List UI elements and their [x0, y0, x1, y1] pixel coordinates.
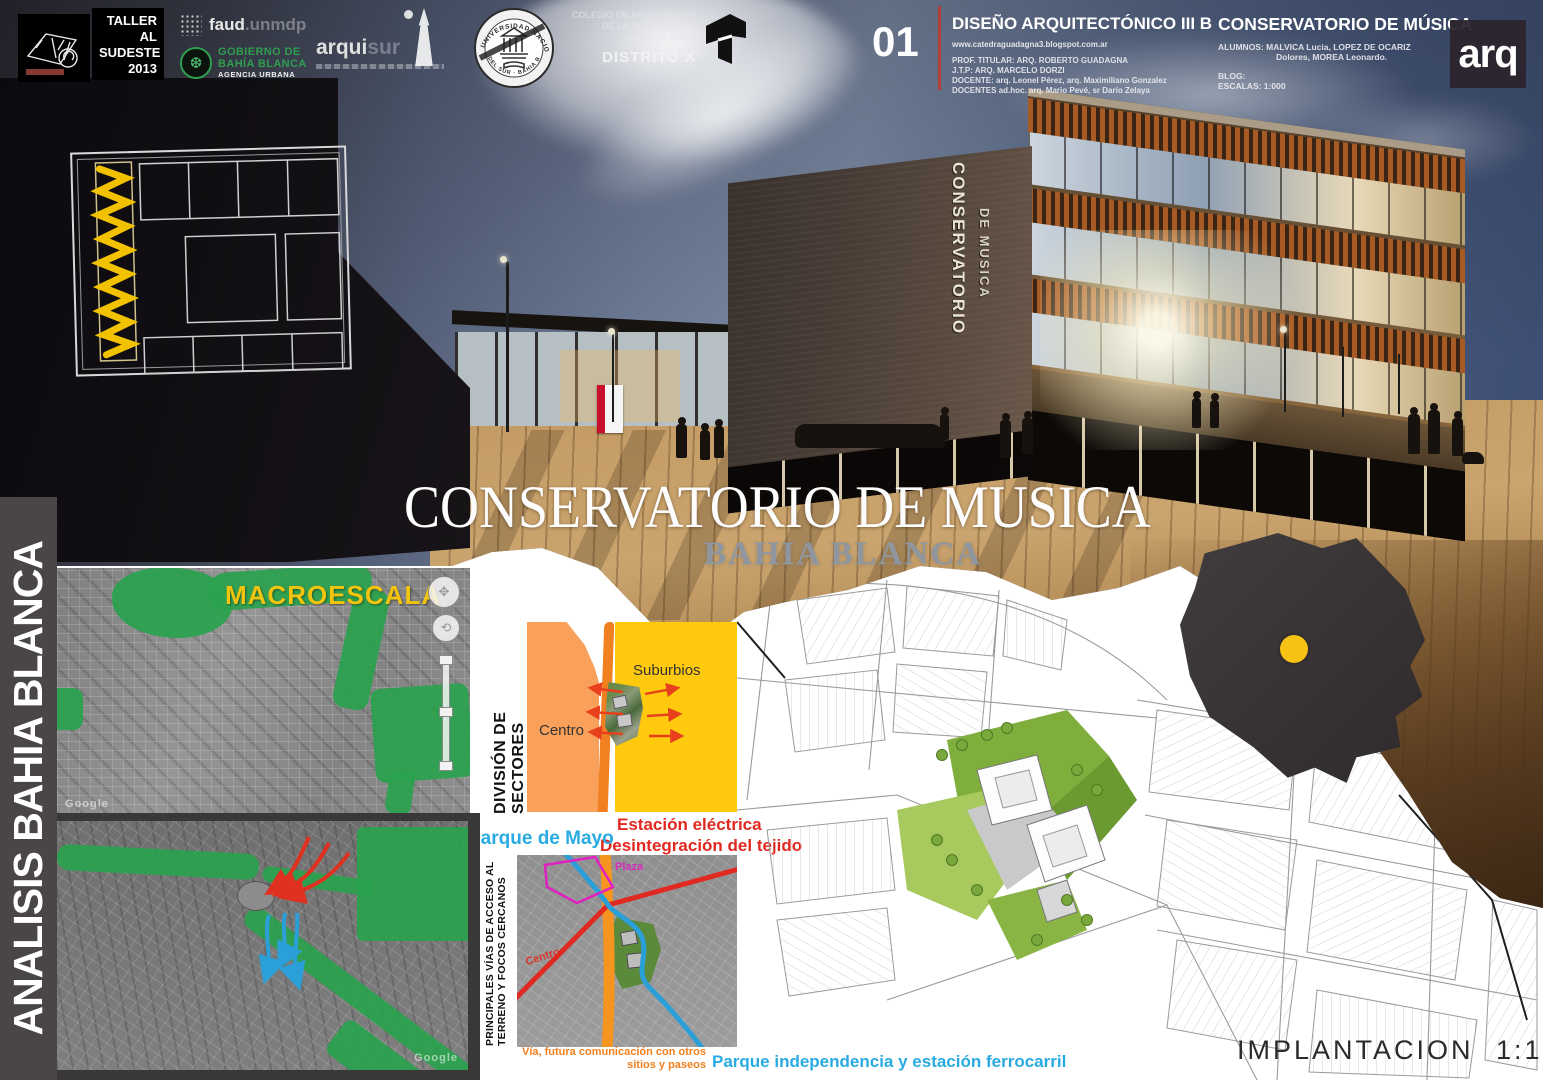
- map-watermark: Google: [65, 798, 109, 810]
- people-silhouette: [1210, 400, 1219, 428]
- hero-title-block: CONSERVATORIO DE MUSICA BAHIA BLANCA: [404, 472, 1151, 573]
- map-watermark: Google: [414, 1052, 458, 1064]
- colegio-block: COLEGIO DE ARQUITECTOS DE LA PROVINCIA D…: [560, 10, 696, 63]
- project-site: [897, 710, 1137, 960]
- sun-glyph: [404, 10, 413, 19]
- lamp-pole: [1284, 332, 1286, 412]
- gobierno-logo: ❆ GOBIERNO DE BAHÍA BLANCA AGENCIA URBAN…: [180, 46, 307, 79]
- green-area: [57, 688, 83, 730]
- people-silhouette: [700, 430, 710, 460]
- map-pan-control: ✥: [428, 576, 460, 608]
- plaza-label: Plaza: [615, 861, 643, 873]
- arq-logo-box: arq: [1450, 20, 1526, 88]
- lamp-head: [608, 328, 615, 335]
- sheet-number: 01: [872, 18, 919, 66]
- orange-caption: Vía, futura comunicación con otros sitio…: [480, 1046, 706, 1072]
- course-adhoc: DOCENTES ad.hoc. arq. Mario Pevé, sr Dar…: [952, 86, 1204, 96]
- project-alumnos1: ALUMNOS: MALVICA Lucia, LOPEZ DE OCARIZ: [1218, 42, 1450, 52]
- building-facade-left: [728, 146, 1032, 513]
- people-silhouette: [1000, 420, 1011, 458]
- course-url: www.catedraguadagna3.blogspot.com.ar: [952, 40, 1204, 50]
- green-area: [384, 768, 416, 814]
- lamp-head: [500, 256, 507, 263]
- colegio-line3: BUENOS AIRES: [560, 32, 696, 43]
- university-seal: UNIVERSIDAD NACIONAL DEL SUR · BAHIA BLA…: [472, 6, 556, 90]
- lamp-pole: [1398, 354, 1400, 414]
- people-silhouette: [1452, 418, 1463, 456]
- building-sign-line1: CONSERVATORIO: [948, 162, 968, 335]
- site-dot: [1280, 635, 1308, 663]
- sectors-diagram: Centro Suburbios: [527, 622, 737, 812]
- course-docente: DOCENTE: arq. Leonel Pérez, arq. Maximil…: [952, 76, 1204, 86]
- hero-title: CONSERVATORIO DE MUSICA: [404, 472, 1151, 541]
- sector-arrows: [527, 622, 737, 812]
- zoom-handle: [439, 707, 453, 717]
- faud-suffix: .unmdp: [245, 15, 306, 34]
- project-alumnos2: Dolores, MOREA Leonardo.: [1218, 52, 1450, 62]
- gobierno-line2: BAHÍA BLANCA: [218, 58, 307, 70]
- arq-logo-text: arq: [1458, 32, 1517, 77]
- flow-map: Google: [57, 821, 468, 1070]
- course-prof: PROF. TITULAR: ARQ. ROBERTO GUADAGNA: [952, 56, 1204, 66]
- signage-kiosk: [597, 385, 623, 433]
- faud-dots-icon: [180, 14, 202, 36]
- access-map: Plaza Centro: [517, 855, 737, 1047]
- taller-line: 2013: [99, 61, 157, 77]
- colegio-line2: DE LA PROVINCIA DE: [560, 21, 696, 32]
- zoom-handle: [439, 655, 453, 665]
- building-sign-line2: DE MUSICA: [977, 208, 992, 299]
- access-label-line1: PRINCIPALES VÍAS DE ACCESO AL: [484, 861, 496, 1046]
- presentation-board: IMPLANTACION 1:1000: [0, 0, 1543, 1080]
- arquisur-suffix: sur: [367, 36, 400, 59]
- map-zoom-slider: [442, 656, 450, 770]
- analysis-sidebar: ANALISIS BAHIA BLANCA: [0, 497, 57, 1080]
- course-jtp: J.T.P: ARQ. MARCELO DORZI: [952, 66, 1204, 76]
- hero-subtitle: BAHIA BLANCA: [404, 536, 982, 573]
- implantation-caption: IMPLANTACION 1:1000: [1237, 1035, 1543, 1066]
- seated-people-group: [795, 424, 945, 448]
- people-silhouette: [1408, 414, 1420, 454]
- dog-silhouette: [1462, 452, 1484, 464]
- macro-map: MACROESCALA ✥ ⟲ Google: [57, 568, 470, 814]
- access-label-line2: TERRENO Y FOCOS CERCANOS: [496, 877, 508, 1046]
- analysis-sidebar-label: ANALISIS BAHIA BLANCA: [5, 541, 52, 1036]
- monument-icon: [402, 8, 446, 66]
- flow-arrows: [57, 821, 468, 1070]
- lamp-pole: [1342, 347, 1344, 417]
- people-silhouette: [714, 426, 724, 458]
- project-block: CONSERVATORIO DE MÚSICA ALUMNOS: MALVICA…: [1218, 14, 1450, 91]
- access-label: PRINCIPALES VÍAS DE ACCESO AL TERRENO Y …: [484, 858, 508, 1046]
- header: TALLER AL SUDESTE 2013 faud.unmdp ❆ GOBI…: [0, 0, 1543, 100]
- gobierno-line3: AGENCIA URBANA: [218, 70, 307, 79]
- gobierno-line1: GOBIERNO DE: [218, 46, 307, 58]
- colegio-line1: COLEGIO DE ARQUITECTOS: [560, 10, 696, 21]
- project-title: CONSERVATORIO DE MÚSICA: [1218, 14, 1450, 35]
- faud-brand: faud: [209, 15, 245, 34]
- taller-logo-drawing: [18, 14, 90, 82]
- arquisur-brand: arqui: [316, 36, 367, 59]
- people-silhouette: [940, 414, 949, 440]
- sectors-label: DIVISIÓN DE SECTORES: [492, 622, 528, 814]
- taller-line: AL: [99, 29, 157, 45]
- parque-mayo-label: Parque de Mayo: [468, 828, 614, 850]
- distrito-label: DISTRITO X: [560, 52, 696, 63]
- zoom-handle: [439, 761, 453, 771]
- people-silhouette: [1192, 398, 1201, 428]
- lamp-pole: [612, 334, 614, 422]
- faud-logo: faud.unmdp: [180, 14, 306, 36]
- taller-line: TALLER: [99, 13, 157, 29]
- colegio-logo-icon: [702, 12, 750, 64]
- project-blog: BLOG:: [1218, 71, 1450, 81]
- people-silhouette: [676, 424, 687, 458]
- orange-caption-line2: sitios y paseos: [480, 1059, 706, 1072]
- green-area: [370, 683, 470, 784]
- header-divider: [938, 6, 941, 90]
- concept-sketch: [67, 138, 357, 385]
- gobierno-emblem-icon: ❆: [180, 47, 212, 79]
- map-rotate-control: ⟲: [432, 614, 460, 642]
- sun-glare: [1040, 230, 1300, 450]
- people-silhouette: [1022, 418, 1033, 454]
- course-title: DISEÑO ARQUITECTÓNICO III B: [952, 14, 1204, 34]
- orange-caption-line1: Vía, futura comunicación con otros: [480, 1046, 706, 1059]
- project-escalas: ESCALAS: 1:000: [1218, 81, 1450, 91]
- taller-title-box: TALLER AL SUDESTE 2013: [92, 8, 164, 80]
- course-block: DISEÑO ARQUITECTÓNICO III B www.catedrag…: [952, 14, 1204, 96]
- macro-label: MACROESCALA: [225, 580, 441, 611]
- taller-logo: [18, 14, 90, 82]
- people-silhouette: [1428, 410, 1440, 454]
- lamp-head: [1280, 326, 1287, 333]
- taller-line: SUDESTE: [99, 45, 157, 61]
- lamp-pole: [506, 262, 509, 432]
